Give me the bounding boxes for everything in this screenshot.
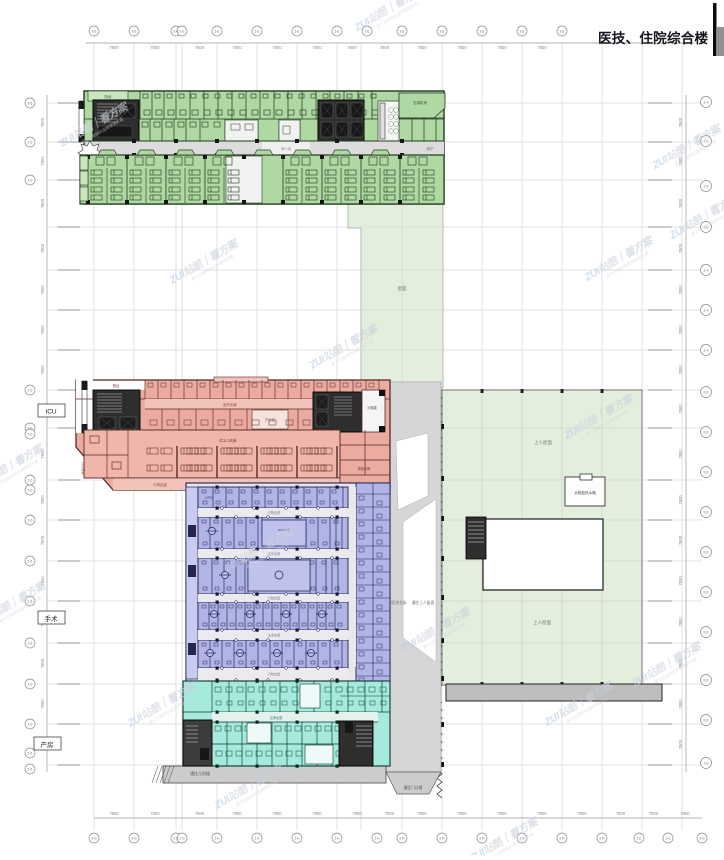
svg-text:7800: 7800 bbox=[417, 45, 427, 50]
svg-text:2-6: 2-6 bbox=[28, 389, 33, 393]
svg-text:2-E: 2-E bbox=[399, 837, 405, 841]
svg-text:7800: 7800 bbox=[312, 811, 322, 816]
svg-text:2-E: 2-E bbox=[294, 837, 300, 841]
svg-text:2-E: 2-E bbox=[131, 837, 137, 841]
svg-text:2-E: 2-E bbox=[479, 837, 485, 841]
svg-text:7800: 7800 bbox=[678, 495, 683, 505]
svg-text:行物走廊: 行物走廊 bbox=[153, 482, 167, 487]
svg-text:太阳能热水箱: 太阳能热水箱 bbox=[574, 490, 596, 495]
svg-text:7800: 7800 bbox=[616, 811, 626, 816]
svg-text:7800: 7800 bbox=[40, 117, 45, 127]
svg-text:2-6: 2-6 bbox=[28, 519, 33, 523]
svg-text:2-6: 2-6 bbox=[28, 683, 33, 687]
svg-text:7800: 7800 bbox=[40, 365, 45, 375]
svg-text:2-6: 2-6 bbox=[28, 141, 33, 145]
svg-text:7800: 7800 bbox=[678, 325, 683, 335]
svg-text:2-E: 2-E bbox=[519, 30, 525, 34]
svg-text:7800: 7800 bbox=[40, 156, 45, 166]
svg-text:7800: 7800 bbox=[678, 617, 683, 627]
svg-text:视频示教: 视频示教 bbox=[358, 466, 372, 471]
svg-text:7800: 7800 bbox=[678, 198, 683, 208]
svg-text:2-6: 2-6 bbox=[704, 511, 709, 515]
svg-text:2-E: 2-E bbox=[699, 837, 705, 841]
svg-text:上人屋面: 上人屋面 bbox=[534, 439, 552, 446]
svg-text:7800: 7800 bbox=[678, 535, 683, 545]
svg-text:产房: 产房 bbox=[41, 740, 54, 749]
svg-text:7800: 7800 bbox=[678, 117, 683, 127]
svg-text:7800: 7800 bbox=[352, 811, 362, 816]
svg-text:行物走廊: 行物走廊 bbox=[268, 510, 282, 515]
svg-text:7800: 7800 bbox=[195, 811, 205, 816]
svg-text:7800: 7800 bbox=[347, 45, 357, 50]
svg-text:2-6: 2-6 bbox=[704, 719, 709, 723]
svg-text:2-6: 2-6 bbox=[704, 391, 709, 395]
svg-text:2-6: 2-6 bbox=[28, 642, 33, 646]
svg-text:7800: 7800 bbox=[40, 325, 45, 335]
svg-text:2-E: 2-E bbox=[559, 837, 565, 841]
svg-text:2-6: 2-6 bbox=[28, 752, 33, 756]
svg-text:阳台: 阳台 bbox=[113, 383, 119, 388]
svg-text:护士站: 护士站 bbox=[265, 417, 275, 422]
svg-text:7800: 7800 bbox=[40, 495, 45, 505]
svg-text:2-E: 2-E bbox=[665, 837, 671, 841]
svg-text:2-E: 2-E bbox=[214, 837, 220, 841]
svg-text:洁净走廊: 洁净走廊 bbox=[270, 715, 284, 720]
svg-text:空调机房: 空调机房 bbox=[413, 100, 428, 105]
svg-text:7800: 7800 bbox=[232, 811, 242, 816]
svg-text:2-6: 2-6 bbox=[704, 679, 709, 683]
svg-text:7800: 7800 bbox=[150, 45, 160, 50]
svg-text:7800: 7800 bbox=[312, 45, 322, 50]
svg-text:2-6: 2-6 bbox=[704, 309, 709, 313]
svg-text:2-E: 2-E bbox=[254, 837, 260, 841]
svg-text:7800: 7800 bbox=[497, 45, 507, 50]
svg-text:2-6: 2-6 bbox=[704, 591, 709, 595]
svg-text:2-6: 2-6 bbox=[704, 551, 709, 555]
svg-text:7800: 7800 bbox=[678, 699, 683, 709]
svg-text:2-E: 2-E bbox=[334, 30, 340, 34]
svg-text:2-E: 2-E bbox=[214, 30, 220, 34]
svg-text:净小径: 净小径 bbox=[281, 146, 292, 151]
svg-text:7800: 7800 bbox=[537, 811, 547, 816]
svg-text:7800: 7800 bbox=[417, 811, 427, 816]
svg-text:2-E: 2-E bbox=[399, 30, 405, 34]
svg-text:7800: 7800 bbox=[40, 658, 45, 668]
svg-text:2-E: 2-E bbox=[334, 837, 340, 841]
svg-text:7800: 7800 bbox=[577, 811, 587, 816]
svg-text:7800: 7800 bbox=[380, 45, 390, 50]
svg-text:7800: 7800 bbox=[678, 404, 683, 414]
svg-text:7800: 7800 bbox=[678, 739, 683, 749]
svg-text:通往儿科楼: 通往儿科楼 bbox=[190, 770, 210, 776]
svg-text:2-6: 2-6 bbox=[28, 427, 33, 431]
svg-text:医技、住院综合楼: 医技、住院综合楼 bbox=[598, 30, 709, 46]
svg-text:7800: 7800 bbox=[40, 535, 45, 545]
svg-text:上人屋面: 上人屋面 bbox=[533, 619, 551, 626]
svg-text:2-6: 2-6 bbox=[704, 762, 709, 766]
svg-text:2-6: 2-6 bbox=[28, 723, 33, 727]
svg-text:7800: 7800 bbox=[678, 365, 683, 375]
svg-text:2-6: 2-6 bbox=[704, 349, 709, 353]
svg-text:ICU 24床: ICU 24床 bbox=[219, 437, 237, 444]
svg-text:行物走廊: 行物走廊 bbox=[268, 672, 282, 677]
svg-text:2-6: 2-6 bbox=[704, 631, 709, 635]
svg-text:医护走廊: 医护走廊 bbox=[223, 402, 237, 407]
svg-text:2-6: 2-6 bbox=[704, 185, 709, 189]
svg-text:7800: 7800 bbox=[678, 576, 683, 586]
svg-text:2-6: 2-6 bbox=[28, 102, 33, 106]
svg-text:2-6: 2-6 bbox=[704, 101, 709, 105]
svg-text:通往上人屋面: 通往上人屋面 bbox=[412, 600, 435, 605]
svg-text:2-6: 2-6 bbox=[28, 489, 33, 493]
svg-text:ICU: ICU bbox=[45, 409, 57, 416]
svg-text:2-6: 2-6 bbox=[704, 471, 709, 475]
svg-text:通往门诊楼: 通往门诊楼 bbox=[404, 785, 423, 790]
svg-text:7800: 7800 bbox=[40, 285, 45, 295]
svg-text:2-E: 2-E bbox=[439, 30, 445, 34]
svg-text:2-6: 2-6 bbox=[28, 433, 33, 437]
svg-text:阳台: 阳台 bbox=[105, 94, 112, 99]
svg-text:7800: 7800 bbox=[272, 811, 282, 816]
svg-text:7800: 7800 bbox=[150, 811, 160, 816]
svg-text:2-6: 2-6 bbox=[704, 269, 709, 273]
svg-text:7800: 7800 bbox=[40, 243, 45, 253]
svg-text:2-E: 2-E bbox=[179, 30, 185, 34]
svg-text:7800: 7800 bbox=[678, 285, 683, 295]
svg-text:2-E: 2-E bbox=[364, 30, 370, 34]
svg-text:2-E: 2-E bbox=[559, 30, 565, 34]
svg-text:7800: 7800 bbox=[678, 243, 683, 253]
svg-text:2-E: 2-E bbox=[599, 837, 605, 841]
svg-text:2-6: 2-6 bbox=[704, 431, 709, 435]
svg-text:7800: 7800 bbox=[680, 811, 690, 816]
svg-text:2-E: 2-E bbox=[91, 837, 97, 841]
svg-text:7800: 7800 bbox=[272, 45, 282, 50]
svg-text:2-E: 2-E bbox=[131, 30, 137, 34]
svg-text:7800: 7800 bbox=[40, 198, 45, 208]
svg-text:2-E: 2-E bbox=[179, 837, 185, 841]
svg-text:7800: 7800 bbox=[109, 811, 119, 816]
svg-text:7800: 7800 bbox=[457, 811, 467, 816]
svg-text:2-6: 2-6 bbox=[28, 560, 33, 564]
svg-text:洁净走廊: 洁净走廊 bbox=[268, 633, 282, 638]
svg-text:7800: 7800 bbox=[40, 699, 45, 709]
svg-text:7800: 7800 bbox=[649, 811, 659, 816]
svg-text:7800: 7800 bbox=[195, 45, 205, 50]
svg-text:2-E: 2-E bbox=[479, 30, 485, 34]
svg-text:7800: 7800 bbox=[109, 45, 119, 50]
svg-text:2-E: 2-E bbox=[439, 837, 445, 841]
svg-text:2-E: 2-E bbox=[636, 837, 642, 841]
svg-text:7800: 7800 bbox=[232, 45, 242, 50]
svg-text:2-6: 2-6 bbox=[28, 768, 33, 772]
svg-text:手术: 手术 bbox=[45, 614, 59, 623]
svg-text:行物走廊: 行物走廊 bbox=[268, 596, 282, 601]
svg-text:7800: 7800 bbox=[537, 45, 547, 50]
svg-text:7800: 7800 bbox=[385, 811, 395, 816]
svg-text:2-E: 2-E bbox=[254, 30, 260, 34]
svg-text:2-E: 2-E bbox=[294, 30, 300, 34]
svg-text:污物通道: 污物通道 bbox=[81, 462, 86, 476]
svg-text:医护: 医护 bbox=[427, 146, 435, 151]
svg-text:2-E: 2-E bbox=[91, 30, 97, 34]
svg-text:医技主街: 医技主街 bbox=[391, 600, 406, 605]
svg-text:7800: 7800 bbox=[457, 45, 467, 50]
svg-text:UPS: UPS bbox=[205, 496, 213, 500]
svg-text:2-E: 2-E bbox=[374, 837, 380, 841]
svg-text:2-6: 2-6 bbox=[28, 479, 33, 483]
svg-text:2-6: 2-6 bbox=[28, 179, 33, 183]
svg-text:7800: 7800 bbox=[497, 811, 507, 816]
svg-text:7800: 7800 bbox=[678, 449, 683, 459]
svg-text:污梯楼: 污梯楼 bbox=[367, 405, 377, 410]
